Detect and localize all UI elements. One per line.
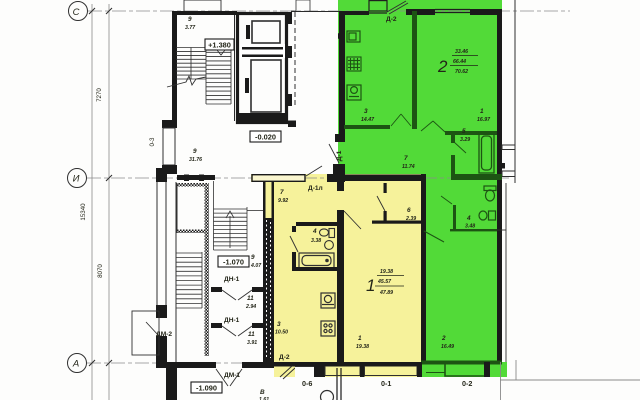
svg-text:В: В (260, 389, 265, 396)
svg-text:3: 3 (277, 321, 281, 328)
svg-text:-0.020: -0.020 (255, 133, 276, 142)
svg-text:14.47: 14.47 (361, 117, 375, 123)
svg-text:47.89: 47.89 (379, 290, 393, 296)
svg-text:4.07: 4.07 (250, 263, 262, 269)
svg-text:Д-1: Д-1 (336, 150, 343, 161)
svg-text:8070: 8070 (97, 264, 104, 278)
svg-text:2.39: 2.39 (405, 216, 416, 222)
svg-text:Д-1л: Д-1л (308, 185, 323, 192)
svg-text:3: 3 (364, 108, 368, 115)
svg-text:31.76: 31.76 (189, 157, 202, 163)
svg-text:3.77: 3.77 (185, 25, 196, 31)
svg-text:4: 4 (312, 228, 317, 235)
svg-text:19.38: 19.38 (380, 269, 393, 275)
svg-text:И: И (73, 174, 80, 185)
svg-text:3.91: 3.91 (247, 340, 257, 346)
svg-text:15340: 15340 (80, 203, 87, 221)
svg-text:2: 2 (437, 57, 448, 76)
svg-text:0-1: 0-1 (381, 379, 391, 388)
svg-text:Д-2: Д-2 (386, 16, 397, 23)
svg-text:1: 1 (366, 276, 375, 295)
svg-text:7: 7 (404, 155, 408, 162)
svg-text:A: A (72, 359, 79, 370)
svg-text:ДМ-1: ДМ-1 (224, 372, 240, 379)
svg-text:C: C (73, 7, 80, 18)
svg-text:1: 1 (480, 108, 484, 115)
svg-text:11.74: 11.74 (402, 164, 415, 170)
svg-text:-1.090: -1.090 (196, 384, 217, 393)
svg-text:9.92: 9.92 (278, 198, 288, 204)
svg-text:33.46: 33.46 (455, 49, 468, 55)
svg-text:0-2: 0-2 (462, 379, 472, 388)
svg-text:2.94: 2.94 (245, 304, 256, 310)
svg-text:0-6: 0-6 (302, 379, 312, 388)
svg-text:70.62: 70.62 (455, 69, 468, 75)
svg-text:1: 1 (358, 335, 362, 342)
svg-text:+1.380: +1.380 (208, 41, 231, 50)
svg-text:2: 2 (441, 335, 446, 342)
svg-text:3.48: 3.48 (465, 224, 475, 230)
svg-text:6: 6 (407, 207, 411, 214)
svg-text:10.50: 10.50 (275, 330, 288, 336)
svg-text:9: 9 (193, 148, 197, 155)
svg-text:3.38: 3.38 (311, 238, 321, 244)
svg-text:16.97: 16.97 (477, 117, 491, 123)
svg-text:7: 7 (280, 189, 284, 196)
svg-text:Д-2: Д-2 (279, 354, 290, 361)
svg-text:-1.070: -1.070 (223, 258, 244, 267)
svg-text:9: 9 (251, 254, 255, 261)
svg-text:45.57: 45.57 (377, 279, 392, 285)
svg-text:66.44: 66.44 (453, 59, 466, 65)
svg-text:7270: 7270 (96, 88, 103, 102)
svg-text:0-3: 0-3 (149, 137, 156, 147)
svg-text:ДН-1: ДН-1 (224, 276, 240, 283)
svg-text:11: 11 (248, 331, 255, 338)
svg-text:11: 11 (247, 295, 254, 302)
svg-text:4: 4 (466, 215, 471, 222)
svg-text:19.38: 19.38 (356, 344, 369, 350)
svg-text:9: 9 (188, 16, 192, 23)
svg-text:ДН-1: ДН-1 (224, 317, 240, 324)
svg-text:3.29: 3.29 (460, 137, 470, 143)
svg-text:16.49: 16.49 (441, 344, 454, 350)
svg-text:5: 5 (462, 128, 466, 135)
